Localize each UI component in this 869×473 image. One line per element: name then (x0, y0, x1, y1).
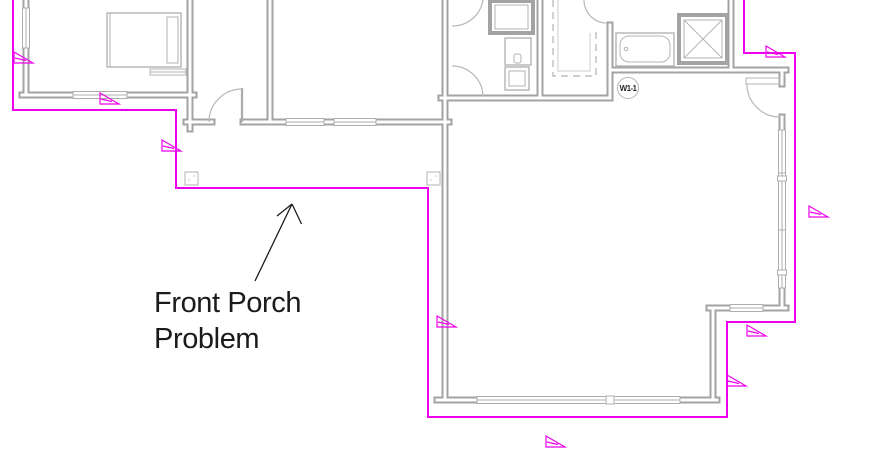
porch-post-left (185, 172, 198, 185)
greatroom-east-door (746, 78, 780, 117)
flag-marker[interactable] (766, 46, 785, 57)
walls (22, 0, 786, 400)
bathtub (616, 33, 674, 66)
annotation-note[interactable]: Front Porch Problem (154, 204, 302, 355)
vanity-sink (505, 38, 531, 65)
window-tag-label: W1-1 (620, 84, 638, 93)
closet-door (584, 0, 607, 23)
window-bedroom2-front-2 (334, 119, 376, 126)
drawing-canvas: W1-1 Front Porch Problem (0, 0, 869, 473)
window-bedroom2-front-1 (286, 119, 324, 126)
porch-post-right (427, 172, 440, 185)
flag-marker[interactable] (727, 375, 746, 386)
hall-door-lower (452, 66, 483, 97)
annotation-arrow (255, 204, 302, 281)
walk-in-closet-shelves (553, 0, 596, 76)
window-tag[interactable]: W1-1 (618, 78, 639, 99)
bed (107, 13, 181, 67)
flag-marker[interactable] (546, 436, 565, 447)
window-bedroom1-left (23, 8, 30, 48)
correction-flags (14, 46, 828, 447)
window-greatroom-right (778, 130, 787, 288)
flag-marker[interactable] (809, 206, 828, 217)
window-step-wall (730, 305, 763, 312)
flag-marker[interactable] (747, 325, 766, 336)
shower (679, 15, 727, 63)
floor-plan: W1-1 Front Porch Problem (0, 0, 869, 473)
flag-marker[interactable] (162, 140, 181, 151)
front-door (209, 88, 242, 122)
window-greatroom-bottom (477, 396, 680, 404)
annotation-line2: Problem (154, 323, 259, 355)
bedroom1-closet (150, 69, 186, 75)
toilet (505, 67, 529, 90)
hall-door-upper (452, 0, 483, 26)
annotation-line1: Front Porch (154, 287, 301, 319)
linen-cabinet (490, 1, 533, 33)
